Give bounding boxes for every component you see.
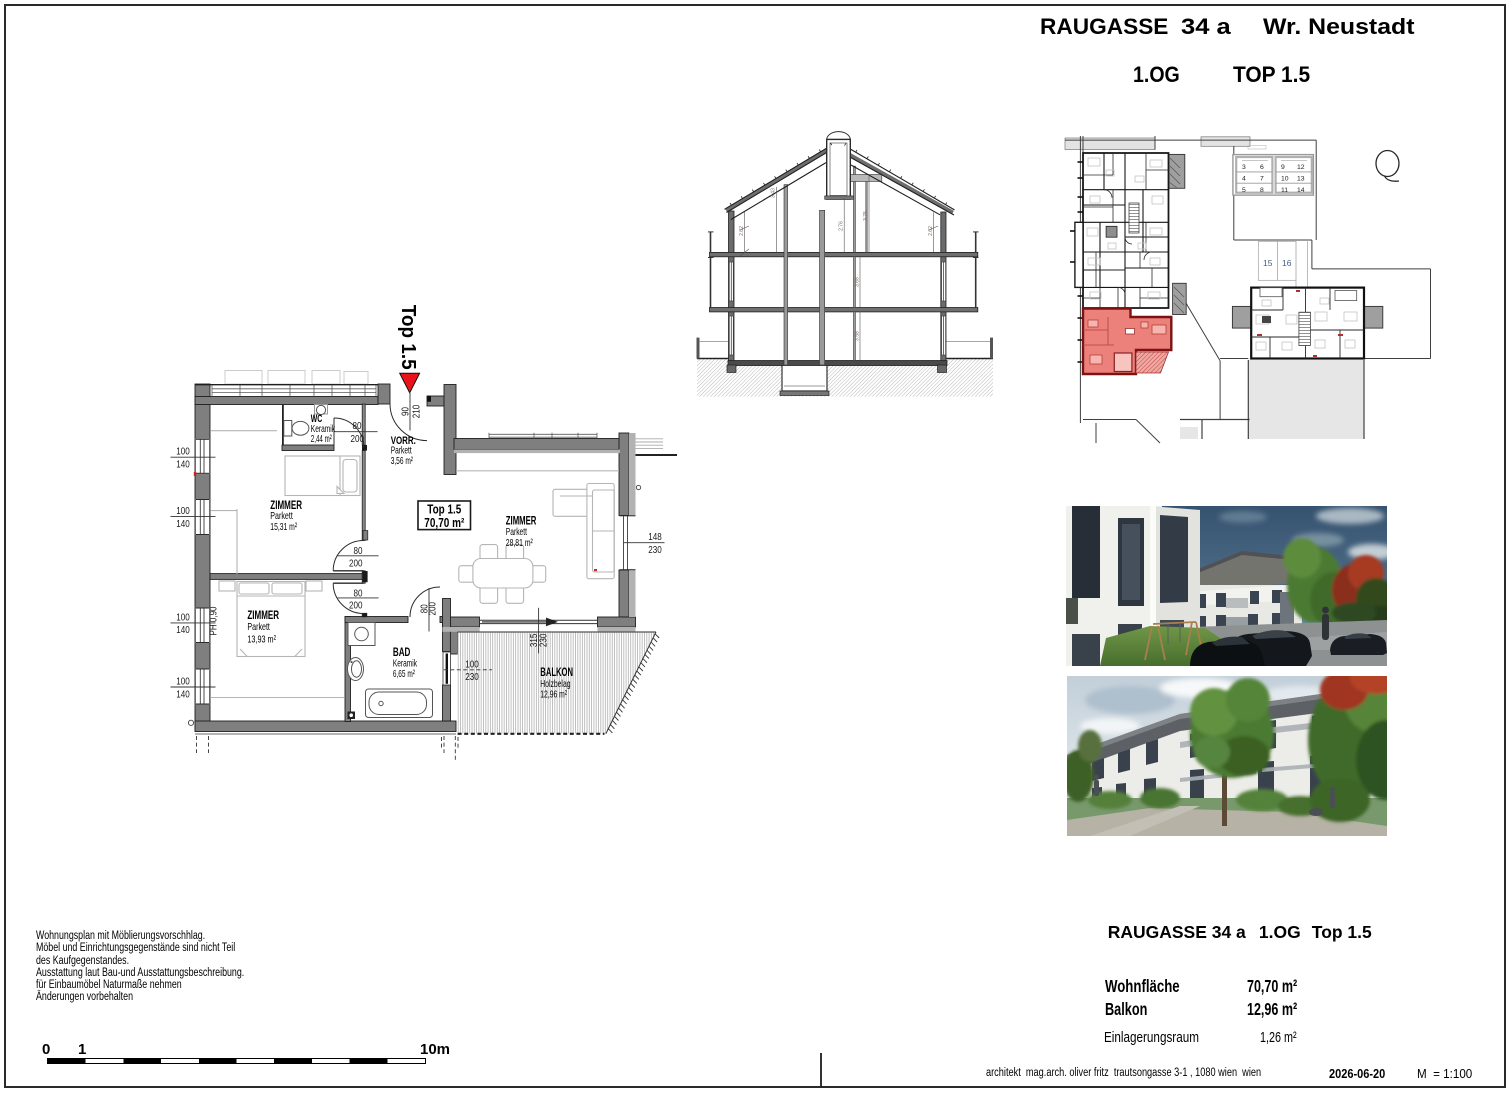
svg-text:3.75: 3.75: [863, 211, 869, 221]
svg-text:11: 11: [1281, 187, 1288, 194]
svg-text:10: 10: [1281, 176, 1289, 183]
svg-text:28,81 m²: 28,81 m²: [506, 537, 533, 549]
svg-text:100: 100: [176, 611, 190, 623]
svg-text:200: 200: [351, 433, 365, 445]
svg-text:PH 0,90: PH 0,90: [209, 606, 220, 635]
svg-text:70,70 m²: 70,70 m²: [424, 516, 464, 530]
svg-text:Parkett: Parkett: [247, 621, 270, 633]
svg-text:2.62: 2.62: [928, 226, 934, 236]
svg-text:100: 100: [465, 658, 479, 670]
svg-text:6: 6: [1260, 164, 1264, 171]
svg-text:13,93 m²: 13,93 m²: [247, 633, 276, 645]
svg-text:3.68: 3.68: [854, 277, 860, 287]
svg-text:80: 80: [354, 545, 363, 557]
svg-text:15: 15: [1263, 258, 1273, 268]
svg-text:200: 200: [426, 602, 438, 616]
svg-text:3.58: 3.58: [854, 331, 860, 341]
svg-text:BALKON: BALKON: [540, 667, 573, 679]
svg-text:Top 1.5: Top 1.5: [397, 305, 419, 370]
svg-text:210: 210: [410, 405, 422, 419]
svg-text:12: 12: [1297, 164, 1305, 171]
svg-text:200: 200: [349, 600, 363, 612]
svg-text:4: 4: [1242, 176, 1246, 183]
svg-text:9: 9: [1281, 164, 1285, 171]
svg-text:140: 140: [176, 459, 190, 471]
svg-text:3: 3: [1242, 164, 1246, 171]
svg-text:2,44 m²: 2,44 m²: [311, 433, 332, 445]
svg-text:230: 230: [648, 544, 662, 556]
svg-text:14: 14: [1297, 187, 1305, 194]
svg-text:16: 16: [1282, 258, 1292, 268]
svg-text:140: 140: [176, 518, 190, 530]
svg-text:2.76: 2.76: [839, 221, 845, 231]
svg-text:148: 148: [648, 531, 662, 543]
svg-text:80: 80: [353, 420, 362, 432]
svg-text:15,31 m²: 15,31 m²: [270, 521, 297, 533]
svg-text:100: 100: [176, 676, 190, 688]
svg-text:100: 100: [176, 505, 190, 517]
svg-text:3.43: 3.43: [771, 188, 777, 198]
svg-text:Top 1.5: Top 1.5: [427, 503, 461, 517]
svg-text:140: 140: [176, 624, 190, 636]
svg-text:230: 230: [465, 671, 479, 683]
svg-text:80: 80: [354, 588, 363, 600]
svg-text:230: 230: [538, 634, 550, 648]
svg-text:140: 140: [176, 688, 190, 700]
svg-text:8: 8: [1260, 187, 1264, 194]
svg-text:6,65 m²: 6,65 m²: [393, 668, 415, 680]
svg-text:100: 100: [176, 446, 190, 458]
svg-text:13: 13: [1297, 176, 1305, 183]
svg-text:12,96 m²: 12,96 m²: [540, 689, 567, 701]
svg-text:3,56 m²: 3,56 m²: [391, 455, 414, 467]
svg-text:2.62: 2.62: [739, 226, 745, 236]
svg-text:7: 7: [1260, 176, 1264, 183]
svg-text:200: 200: [349, 557, 363, 569]
svg-text:5: 5: [1242, 187, 1246, 194]
svg-text:ZIMMER: ZIMMER: [247, 610, 279, 622]
